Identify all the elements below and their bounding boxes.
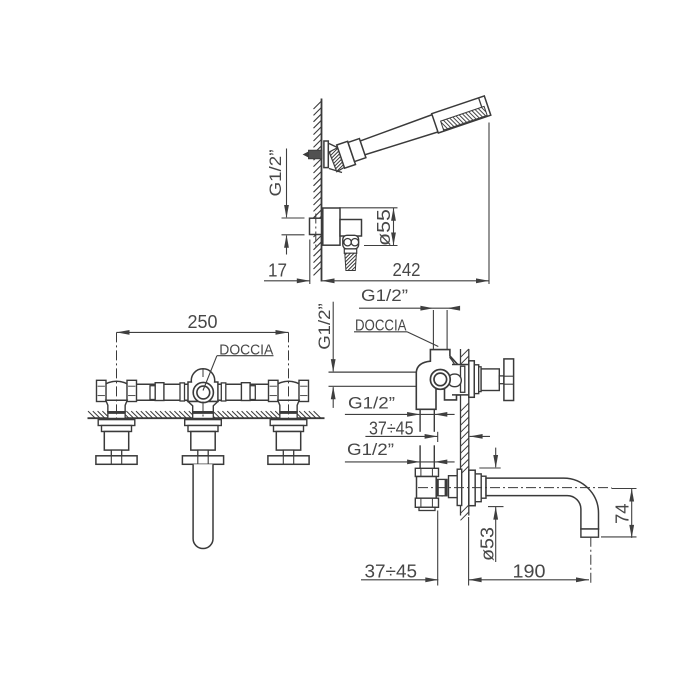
svg-text:G1/2”: G1/2” bbox=[347, 440, 394, 459]
svg-text:ø55: ø55 bbox=[374, 209, 394, 246]
svg-text:242: 242 bbox=[393, 260, 421, 280]
svg-text:G1/2”: G1/2” bbox=[348, 393, 395, 412]
svg-text:74: 74 bbox=[613, 504, 633, 525]
svg-text:G1/2”: G1/2” bbox=[315, 303, 334, 350]
svg-text:37÷45: 37÷45 bbox=[365, 562, 418, 582]
svg-text:ø53: ø53 bbox=[478, 527, 498, 561]
svg-text:250: 250 bbox=[188, 312, 218, 332]
svg-text:17: 17 bbox=[268, 261, 287, 281]
svg-text:G1/2”: G1/2” bbox=[361, 286, 408, 305]
svg-text:37÷45: 37÷45 bbox=[369, 419, 414, 439]
svg-text:G1/2”: G1/2” bbox=[266, 149, 285, 196]
svg-text:190: 190 bbox=[513, 562, 546, 582]
